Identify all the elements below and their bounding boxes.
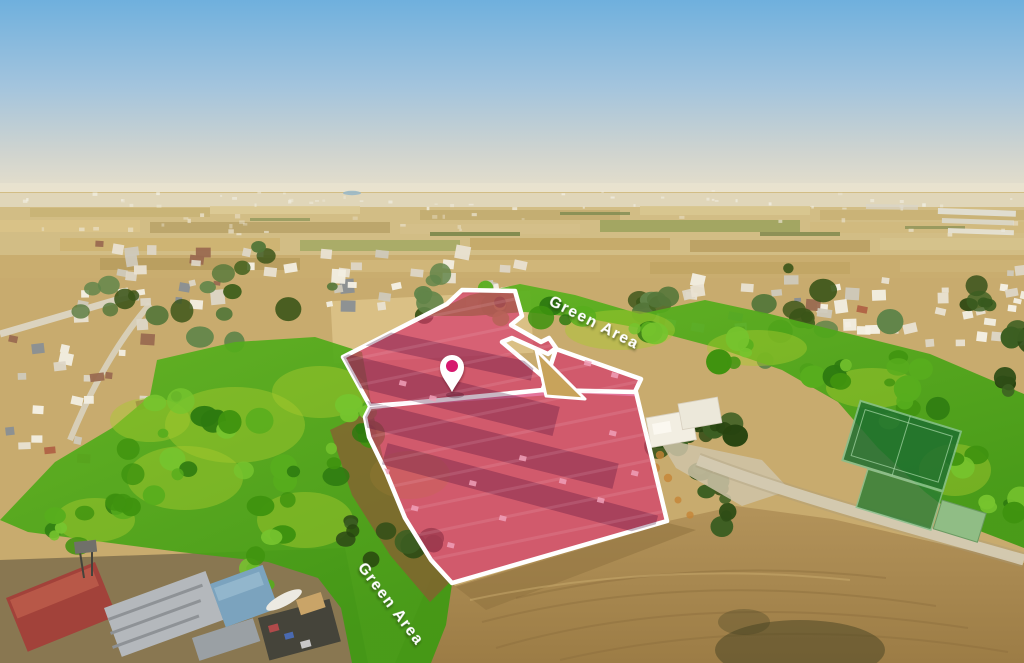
- sky: [0, 0, 1024, 199]
- distant-lake: [343, 191, 361, 195]
- aerial-property-photo: Green AreaGreen Area: [0, 0, 1024, 663]
- pin-dot: [446, 360, 458, 372]
